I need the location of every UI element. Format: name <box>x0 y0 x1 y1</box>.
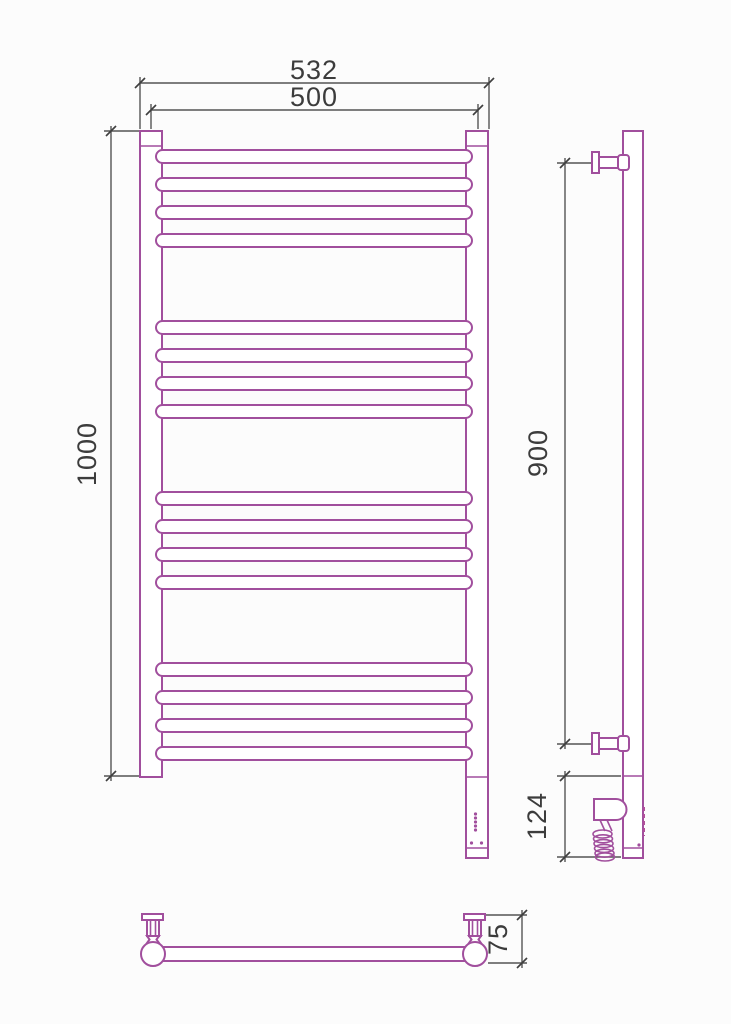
towel-bar <box>156 548 472 561</box>
housing-screw-dot <box>480 841 483 844</box>
dimension-mounting-width: 500 <box>146 82 483 129</box>
towel-bar <box>156 178 472 191</box>
bracket-stem <box>599 738 619 749</box>
towel-bar <box>156 150 472 163</box>
rung-group <box>156 150 472 760</box>
dimension-label-heater-section: 124 <box>522 792 552 840</box>
dimension-label-mounting-width: 500 <box>290 82 338 112</box>
towel-bar <box>156 321 472 334</box>
dimension-wall-depth: 75 <box>483 910 527 968</box>
towel-bar <box>156 747 472 760</box>
led-dot-icon <box>474 824 477 827</box>
right-rail-section-circle <box>463 942 487 966</box>
dimension-overall-height: 1000 <box>72 126 139 781</box>
towel-bar <box>156 492 472 505</box>
dimension-label-overall-height: 1000 <box>72 422 102 486</box>
wall-bracket-right <box>464 914 485 943</box>
towel-rail-technical-drawing: 532 500 1000 900 124 <box>0 0 731 1024</box>
dimension-label-bracket-span: 900 <box>523 429 553 477</box>
bracket-nut <box>618 736 629 751</box>
towel-bar <box>156 349 472 362</box>
left-rail-section-circle <box>141 942 165 966</box>
towel-bar <box>156 719 472 732</box>
bracket-flange <box>592 152 599 173</box>
heating-element <box>593 799 627 861</box>
wall-bracket-left <box>142 914 163 943</box>
wall-bracket-bottom <box>592 733 629 754</box>
bracket-stem <box>147 920 159 936</box>
bracket-stem <box>599 157 619 168</box>
cable-neck <box>607 820 612 831</box>
side-view <box>592 131 644 861</box>
bracket-flange <box>592 733 599 754</box>
heating-element-body <box>594 799 627 820</box>
towel-bar <box>156 691 472 704</box>
led-dot-icon <box>474 820 477 823</box>
towel-bar <box>156 520 472 533</box>
housing-screw-dot <box>637 843 640 846</box>
towel-bar <box>156 377 472 390</box>
towel-bar <box>156 576 472 589</box>
left-vertical-rail <box>140 131 162 777</box>
dimension-label-wall-depth: 75 <box>483 923 513 955</box>
bracket-nut <box>618 155 629 170</box>
technical-drawing-page: 532 500 1000 900 124 <box>0 0 731 1024</box>
dimension-label-overall-width: 532 <box>290 55 338 85</box>
towel-bar <box>156 405 472 418</box>
towel-bar <box>156 234 472 247</box>
towel-bar-top-profile <box>160 947 468 961</box>
top-view <box>141 914 487 966</box>
wall-bracket-top <box>592 152 629 173</box>
bracket-stem <box>469 920 481 936</box>
towel-bar <box>156 663 472 676</box>
led-dot-icon <box>474 812 477 815</box>
front-view <box>140 131 488 858</box>
led-dot-icon <box>474 816 477 819</box>
housing-screw-dot <box>470 841 473 844</box>
dimension-bracket-span: 900 <box>523 158 591 749</box>
towel-bar <box>156 206 472 219</box>
led-dot-icon <box>474 828 477 831</box>
